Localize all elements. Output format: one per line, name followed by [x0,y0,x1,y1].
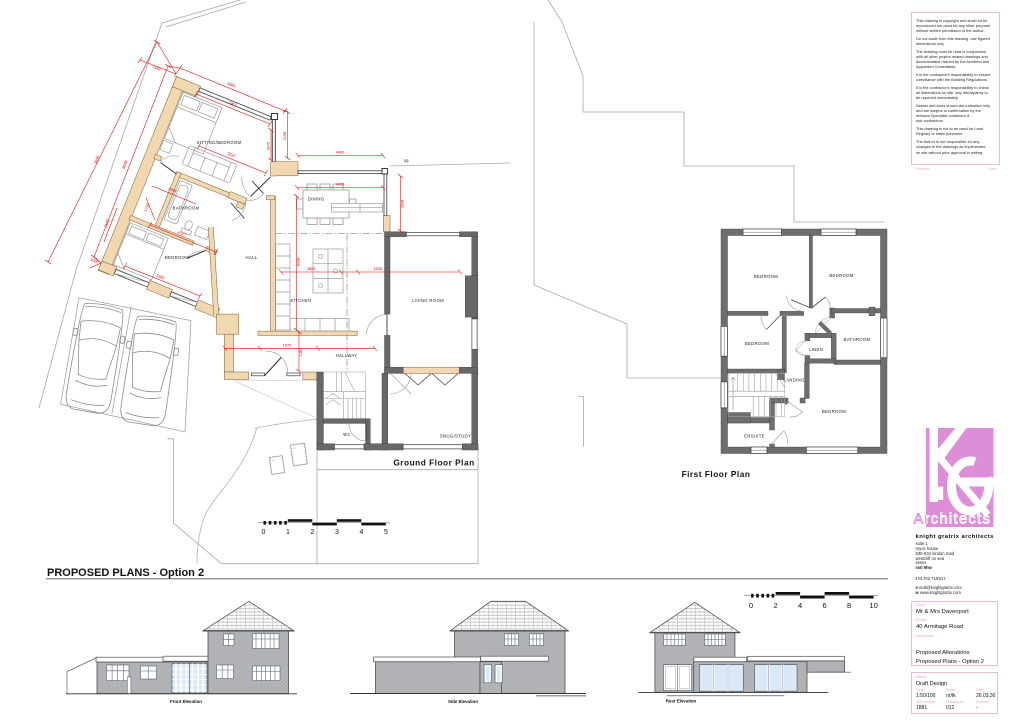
svg-text:1570: 1570 [283,344,291,348]
svg-text:SNUG/STUDY: SNUG/STUDY [440,434,471,439]
svg-text:12: 12 [404,158,409,163]
svg-text:Side Elevation: Side Elevation [448,699,478,704]
svg-text:LIVING ROOM: LIVING ROOM [412,298,444,303]
svg-text:BATHROOM: BATHROOM [173,206,200,211]
svg-text:First Floor Plan: First Floor Plan [682,469,751,479]
svg-text:LINEN: LINEN [809,347,823,352]
svg-text:LANDING: LANDING [783,378,805,383]
svg-text:BEDROOM: BEDROOM [829,273,853,278]
svg-text:BEDROOM: BEDROOM [745,341,769,346]
svg-text:1: 1 [286,529,290,536]
svg-text:HALL: HALL [246,255,258,260]
svg-text:4: 4 [359,529,363,536]
svg-text:3800: 3800 [307,267,315,271]
svg-text:0: 0 [749,601,753,610]
svg-text:Front Elevation: Front Elevation [170,699,202,704]
svg-text:BEDROOM: BEDROOM [165,255,189,260]
svg-text:3075: 3075 [267,142,271,150]
svg-text:2198: 2198 [283,132,287,140]
svg-text:BEDROOM: BEDROOM [754,274,778,279]
svg-text:BEDROOM: BEDROOM [822,409,846,414]
svg-text:10: 10 [869,601,877,610]
svg-text:5: 5 [384,529,388,536]
svg-text:1487: 1487 [299,348,303,356]
svg-text:8: 8 [847,601,851,610]
svg-text:3: 3 [335,529,339,536]
svg-text:2: 2 [310,529,314,536]
svg-text:WC: WC [343,432,351,437]
svg-text:SITTING/BEDROOM: SITTING/BEDROOM [197,140,242,145]
svg-text:Ground Floor Plan: Ground Floor Plan [393,458,474,468]
svg-text:2608: 2608 [401,200,405,208]
svg-text:BATHROOM: BATHROOM [844,337,871,342]
svg-text:0: 0 [262,529,266,536]
svg-text:4435: 4435 [336,183,344,187]
svg-text:ENSUITE: ENSUITE [744,434,765,439]
svg-text:4: 4 [798,601,802,610]
svg-text:1635: 1635 [374,267,382,271]
svg-text:4480: 4480 [336,151,344,155]
svg-text:DINING: DINING [308,197,325,202]
svg-text:8398: 8398 [297,258,301,266]
svg-text:Rear Elevation: Rear Elevation [666,699,697,704]
svg-text:2: 2 [774,601,778,610]
svg-text:HALLWAY: HALLWAY [336,353,358,358]
svg-text:KITCHEN: KITCHEN [291,298,312,303]
svg-text:PROPOSED PLANS - Option 2: PROPOSED PLANS - Option 2 [47,567,204,579]
svg-text:6: 6 [823,601,827,610]
